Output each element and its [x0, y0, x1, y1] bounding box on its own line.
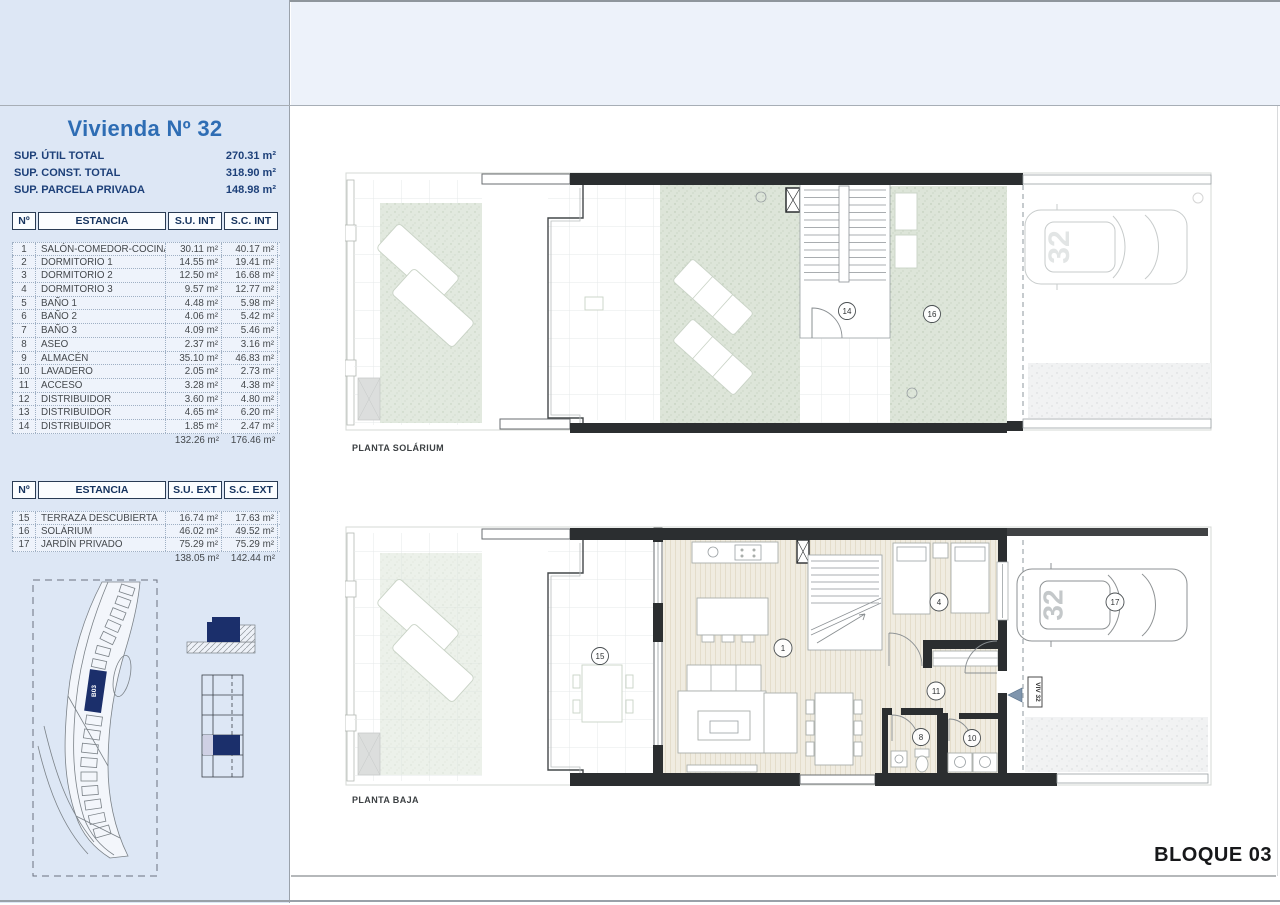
parking-number: 32 — [1037, 589, 1068, 620]
table-body: 15TERRAZA DESCUBIERTA16.74 m²17.63 m² 16… — [12, 511, 280, 552]
col-sc: S.C. INT — [224, 212, 278, 230]
section-key-diagram — [187, 617, 255, 653]
page-title: Vivienda Nº 32 — [0, 116, 290, 142]
floor-plan-baja: 32 VIV 32 15 1 4 11 8 10 17 — [345, 523, 1215, 793]
table-row: 9ALMACÉN35.10 m²46.83 m² — [12, 352, 280, 366]
page-bottom-rule — [0, 900, 1280, 902]
footer-rule — [291, 875, 1276, 877]
site-location-diagrams: B03 — [24, 576, 260, 882]
col-room: ESTANCIA — [38, 481, 166, 499]
total-su: 132.26 m² — [168, 435, 222, 450]
room-label-10: 10 — [964, 730, 981, 747]
table-row: 14DISTRIBUIDOR1.85 m²2.47 m² — [12, 420, 280, 434]
svg-text:VIV 32: VIV 32 — [1034, 682, 1041, 702]
drain — [1193, 193, 1203, 203]
col-room: ESTANCIA — [38, 212, 166, 230]
gravel-strip — [1028, 363, 1211, 418]
room-label-11: 11 — [927, 682, 945, 700]
total-sc: 142.44 m² — [224, 553, 278, 568]
shaft — [786, 188, 800, 212]
room-label-14: 14 — [839, 303, 856, 320]
table-row: 15TERRAZA DESCUBIERTA16.74 m²17.63 m² — [12, 511, 280, 525]
summary-label: SUP. PARCELA PRIVADA — [14, 184, 145, 201]
table-totals: 138.05 m² 142.44 m² — [12, 553, 280, 568]
table-totals: 132.26 m² 176.46 m² — [12, 435, 280, 450]
table-row: 3DORMITORIO 212.50 m²16.68 m² — [12, 269, 280, 283]
plan-caption-baja: PLANTA BAJA — [352, 795, 419, 805]
table-row: 7BAÑO 34.09 m²5.46 m² — [12, 324, 280, 338]
col-su: S.U. EXT — [168, 481, 222, 499]
col-sc: S.C. EXT — [224, 481, 278, 499]
total-su: 138.05 m² — [168, 553, 222, 568]
page-right-rule — [1277, 106, 1278, 876]
header-band — [291, 2, 1280, 105]
site-block-label: B03 — [91, 685, 98, 697]
room-label-15: 15 — [592, 648, 609, 665]
block-label: BLOQUE 03 — [1154, 844, 1272, 867]
table-row: 1SALÓN-COMEDOR-COCINA30.11 m²40.17 m² — [12, 242, 280, 256]
boundary-fence — [347, 533, 354, 781]
summary-row: SUP. CONST. TOTAL 318.90 m² — [14, 167, 276, 184]
col-num: Nº — [12, 481, 36, 499]
grid-cell-unit — [213, 735, 240, 755]
room-label-16: 16 — [924, 306, 941, 323]
svg-text:4: 4 — [937, 598, 942, 607]
gravel-strip — [1025, 717, 1208, 772]
table-header: Nº ESTANCIA S.U. EXT S.C. EXT — [12, 481, 280, 499]
svg-text:8: 8 — [919, 733, 924, 742]
planter — [895, 235, 917, 268]
summary-value: 318.90 m² — [226, 167, 276, 184]
table-row: 10LAVADERO2.05 m²2.73 m² — [12, 365, 280, 379]
table-header: Nº ESTANCIA S.U. INT S.C. INT — [12, 212, 280, 230]
summary-value: 270.31 m² — [226, 150, 276, 167]
entrance-arrow-icon — [1008, 688, 1022, 702]
floor-plan-solarium: 32 14 16 — [345, 170, 1215, 434]
shaft — [797, 540, 809, 563]
header-divider — [0, 105, 1280, 106]
kitchen-counter — [692, 542, 778, 563]
table-row: 4DORMITORIO 39.57 m²12.77 m² — [12, 283, 280, 297]
plan-sheet-page: { "panel": { "title": "Vivienda Nº 32", … — [0, 0, 1280, 905]
party-wall-top — [570, 173, 1007, 185]
side-wall — [997, 528, 1008, 775]
plan-caption-solarium: PLANTA SOLÁRIUM — [352, 443, 444, 453]
table-body: 1SALÓN-COMEDOR-COCINA30.11 m²40.17 m² 2D… — [12, 242, 280, 434]
interior-surfaces-table: Nº ESTANCIA S.U. INT S.C. INT 1SALÓN-COM… — [12, 212, 280, 450]
staircase — [808, 555, 882, 650]
section-block — [207, 617, 240, 642]
site-plan-outline: B03 — [38, 582, 140, 858]
summary-row: SUP. PARCELA PRIVADA 148.98 m² — [14, 184, 276, 201]
total-sc: 176.46 m² — [224, 435, 278, 450]
svg-text:16: 16 — [928, 310, 937, 319]
svg-text:10: 10 — [968, 734, 977, 743]
table-row: 8ASEO2.37 m²3.16 m² — [12, 338, 280, 352]
facade-glazing — [653, 528, 663, 785]
summary-value: 148.98 m² — [226, 184, 276, 201]
dining-set — [806, 693, 862, 765]
party-wall-bottom — [570, 423, 1007, 433]
boundary-fence — [347, 180, 354, 425]
kitchen-island — [697, 598, 768, 642]
table-row: 2DORMITORIO 114.55 m²19.41 m² — [12, 256, 280, 270]
exterior-surfaces-table: Nº ESTANCIA S.U. EXT S.C. EXT 15TERRAZA … — [12, 481, 280, 568]
wall-bottom — [570, 773, 800, 786]
table-row: 13DISTRIBUIDOR4.65 m²6.20 m² — [12, 406, 280, 420]
table-row: 5BAÑO 14.48 m²5.98 m² — [12, 297, 280, 311]
svg-text:14: 14 — [843, 307, 852, 316]
surface-summary: SUP. ÚTIL TOTAL 270.31 m² SUP. CONST. TO… — [14, 150, 276, 201]
svg-text:17: 17 — [1111, 598, 1120, 607]
tv-bench — [687, 765, 757, 772]
wall-top — [570, 528, 1007, 540]
room-label-8: 8 — [913, 729, 930, 746]
svg-text:11: 11 — [932, 687, 941, 696]
parking-number: 32 — [1043, 230, 1076, 263]
svg-text:15: 15 — [596, 652, 605, 661]
room-label-17: 17 — [1106, 593, 1124, 611]
grid-cell-adjacent — [203, 735, 213, 755]
table-row: 16SOLÁRIUM46.02 m²49.52 m² — [12, 525, 280, 539]
stacking-grid-diagram — [202, 675, 243, 777]
wardrobe — [933, 651, 998, 666]
room-label-4: 4 — [930, 593, 948, 611]
col-su: S.U. INT — [168, 212, 222, 230]
summary-label: SUP. CONST. TOTAL — [14, 167, 120, 184]
table-row: 6BAÑO 24.06 m²5.42 m² — [12, 310, 280, 324]
room-label-1: 1 — [774, 639, 792, 657]
table-row: 17JARDÍN PRIVADO75.29 m²75.29 m² — [12, 538, 280, 552]
planter — [895, 193, 917, 230]
table-row: 12DISTRIBUIDOR3.60 m²4.80 m² — [12, 393, 280, 407]
terrace-table — [585, 297, 603, 310]
table-row: 11ACCESO3.28 m²4.38 m² — [12, 379, 280, 393]
summary-row: SUP. ÚTIL TOTAL 270.31 m² — [14, 150, 276, 167]
viv-sign: VIV 32 — [1008, 677, 1042, 707]
col-num: Nº — [12, 212, 36, 230]
summary-label: SUP. ÚTIL TOTAL — [14, 150, 104, 167]
svg-text:1: 1 — [781, 644, 786, 653]
